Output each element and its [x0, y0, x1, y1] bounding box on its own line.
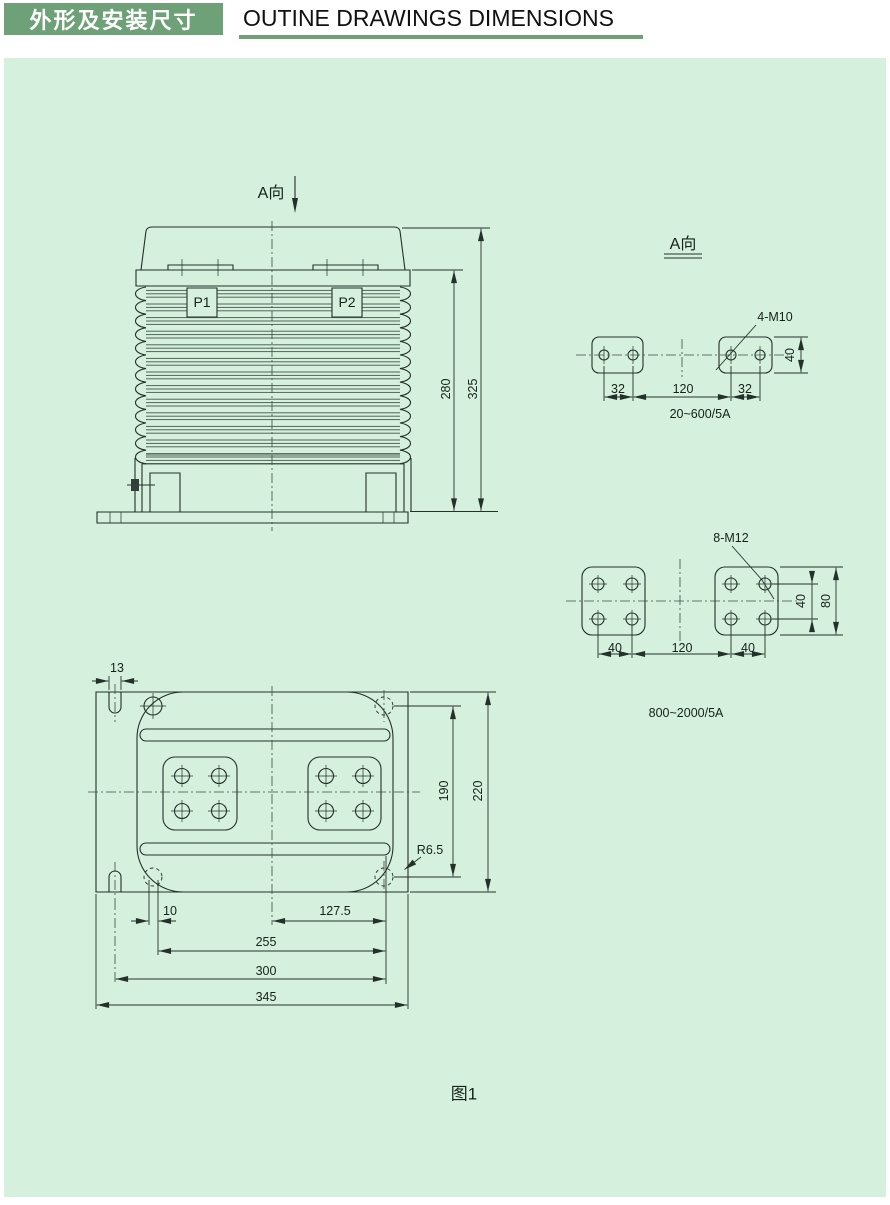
- insulator-fins: [136, 287, 411, 464]
- dim-120-small: 120: [673, 382, 694, 396]
- dim-40-rows: 40: [794, 594, 808, 608]
- top-cap: [141, 227, 405, 270]
- clamp-bolt: [131, 479, 139, 491]
- range-label-small: 20~600/5A: [670, 407, 731, 421]
- pad-small-dimensions: [604, 337, 808, 401]
- bottom-pedestal: [127, 455, 411, 512]
- base-plate-side: [97, 512, 408, 523]
- pad-holes: [589, 575, 774, 628]
- dim-40-small: 40: [783, 348, 797, 362]
- range-label-large: 800~2000/5A: [649, 706, 724, 720]
- vent-slot-top: [140, 729, 390, 741]
- corner-holes: [140, 690, 393, 893]
- primary-terminal-brackets: [168, 259, 378, 276]
- dim-255: 255: [256, 935, 277, 949]
- drawing-page: 外形及安装尺寸 OUTINE DRAWINGS DIMENSIONS: [0, 0, 890, 1205]
- dim-40-left: 40: [608, 641, 622, 655]
- thread-label-4m10: 4-M10: [757, 310, 792, 324]
- terminal-pad-right-top: [308, 757, 381, 830]
- top-plate: [136, 270, 410, 286]
- dim-300: 300: [256, 964, 277, 978]
- front-view: [97, 176, 498, 531]
- technical-drawing-linework: [0, 0, 890, 1205]
- dim-32-left: 32: [611, 382, 625, 396]
- figure-caption: 图1: [451, 1080, 477, 1105]
- terminal-label-p1: P1: [193, 294, 210, 310]
- dim-127-5: 127.5: [319, 904, 350, 918]
- dim-radius: R6.5: [417, 843, 443, 857]
- vent-slot-bottom: [140, 843, 390, 855]
- dim-345: 345: [256, 990, 277, 1004]
- front-dimensions: [402, 228, 498, 512]
- dim-120-large: 120: [672, 641, 693, 655]
- thread-label-8m12: 8-M12: [713, 531, 748, 545]
- pad-view-small: [576, 254, 808, 401]
- terminal-label-p2: P2: [338, 294, 355, 310]
- dim-32-right: 32: [738, 382, 752, 396]
- pad-large-dimensions: [598, 567, 843, 658]
- dim-220: 220: [471, 781, 485, 802]
- thread-leader: [732, 546, 774, 599]
- thread-leader: [716, 325, 756, 370]
- view-direction-arrow: [292, 176, 298, 213]
- dim-280: 280: [439, 379, 453, 400]
- dim-40-right: 40: [741, 641, 755, 655]
- dim-325: 325: [466, 379, 480, 400]
- dim-80: 80: [819, 594, 833, 608]
- front-view-label: A向: [258, 179, 285, 203]
- dim-13: 13: [110, 661, 124, 675]
- dim-10: 10: [163, 904, 177, 918]
- terminal-pad-left-top: [163, 757, 237, 830]
- a-view-label: A向: [670, 230, 697, 254]
- dim-190: 190: [437, 781, 451, 802]
